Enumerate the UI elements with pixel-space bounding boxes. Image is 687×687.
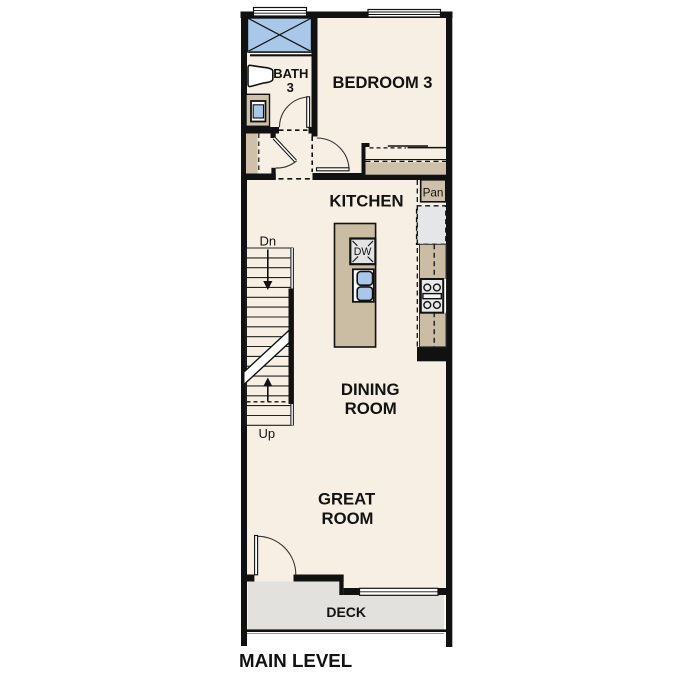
svg-text:MAIN LEVEL: MAIN LEVEL xyxy=(239,650,352,671)
svg-text:Up: Up xyxy=(258,426,275,441)
svg-text:KITCHEN: KITCHEN xyxy=(329,191,403,210)
svg-text:BEDROOM 3: BEDROOM 3 xyxy=(333,74,433,92)
svg-text:Pan: Pan xyxy=(423,186,444,199)
svg-text:3: 3 xyxy=(287,80,294,95)
svg-text:DW: DW xyxy=(354,246,372,258)
svg-text:DECK: DECK xyxy=(326,604,366,620)
svg-text:DINING: DINING xyxy=(341,380,400,399)
svg-text:ROOM: ROOM xyxy=(322,509,374,528)
svg-text:Dn: Dn xyxy=(259,233,276,248)
svg-text:ROOM: ROOM xyxy=(345,399,397,418)
svg-text:GREAT: GREAT xyxy=(318,489,376,508)
